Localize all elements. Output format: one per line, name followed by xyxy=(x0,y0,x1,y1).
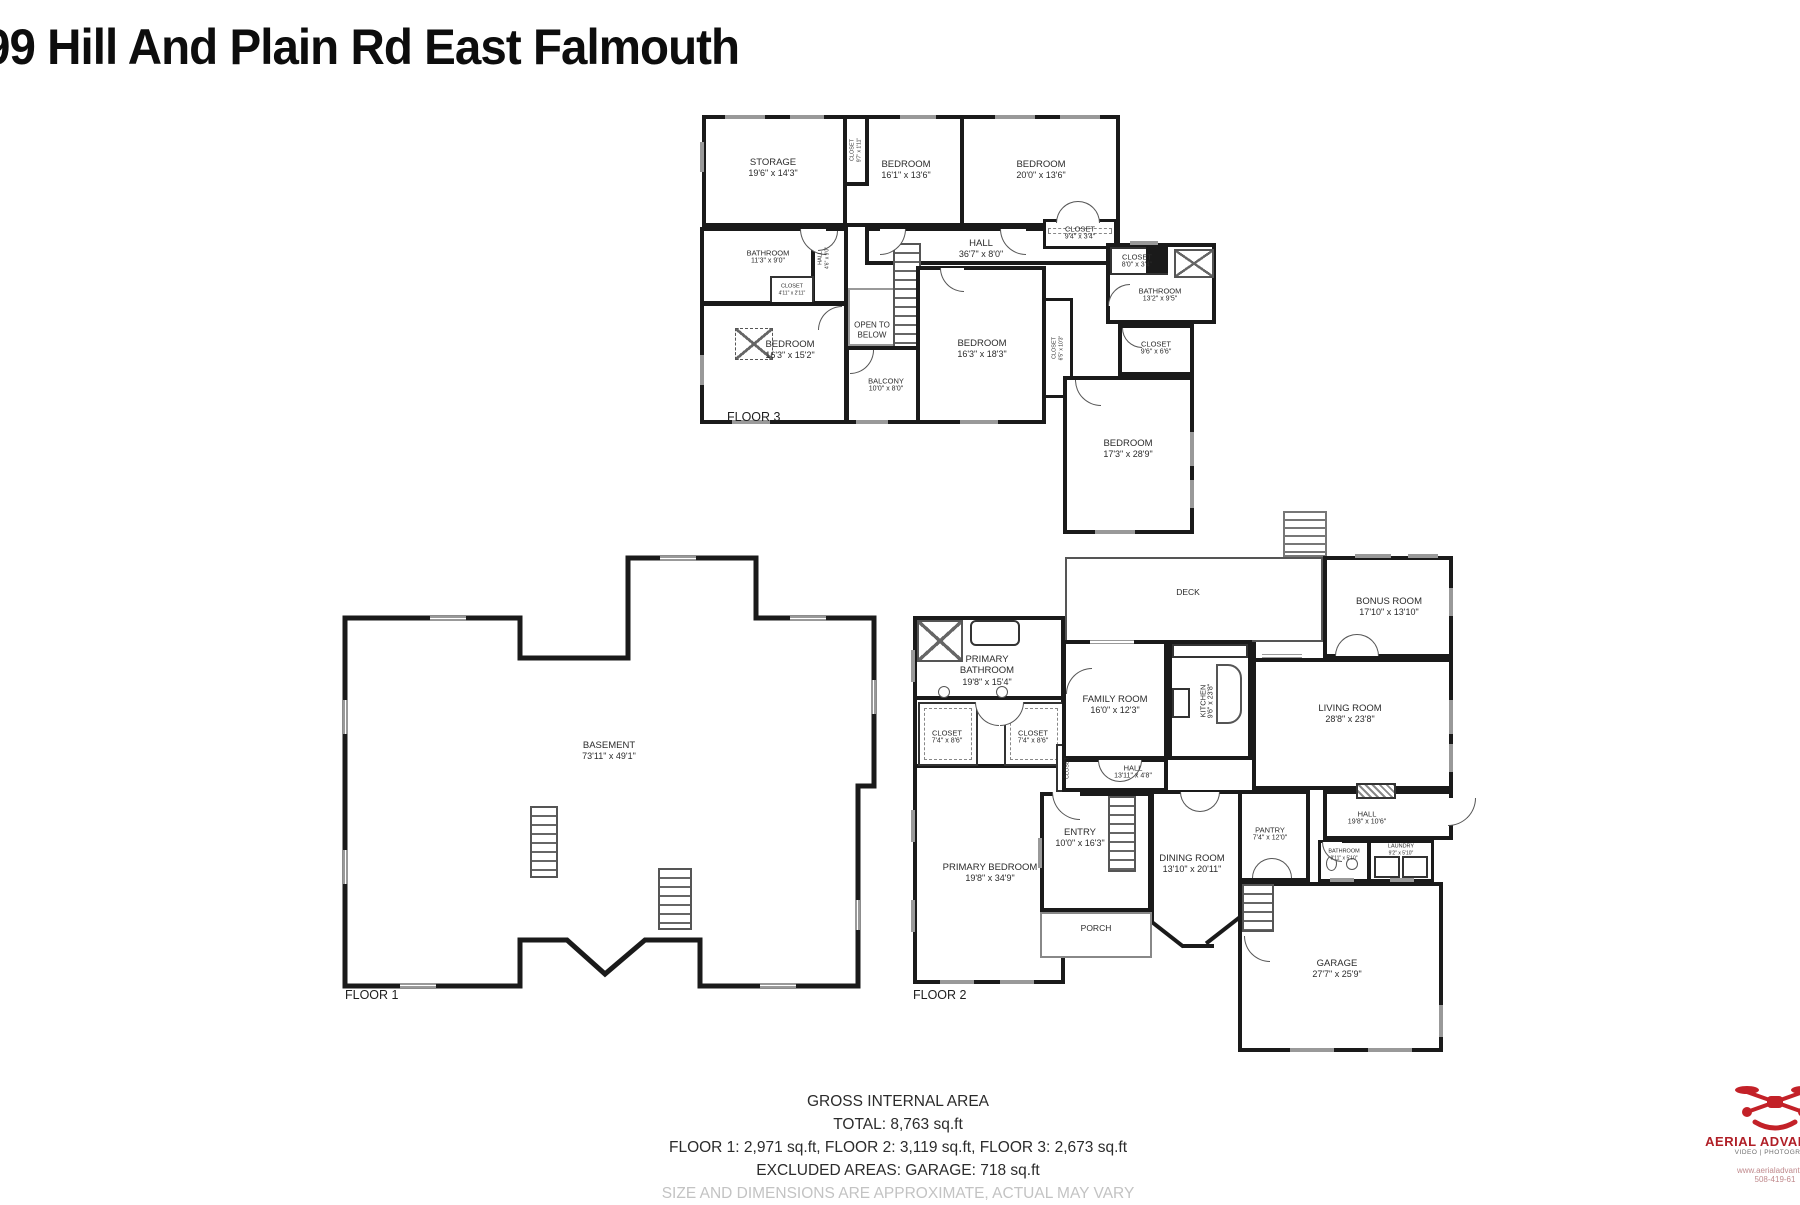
room-label-laundry: LAUNDRY9'2" x 5'10" xyxy=(1388,844,1414,857)
window-marker xyxy=(1368,1048,1412,1052)
room-label-closet-small: CLOSET4'11" x 2'11" xyxy=(779,284,806,297)
room-label-deck: DECK xyxy=(1176,587,1200,597)
window-marker xyxy=(1439,1005,1443,1037)
room-label-living: LIVING ROOM28'8" x 23'8" xyxy=(1318,703,1381,725)
room-label-bedroom-c: BEDROOM16'3" x 15'2" xyxy=(765,339,814,361)
room-label-garage: GARAGE27'7" x 25'9" xyxy=(1312,958,1361,980)
room-label-hall-right: HALL19'8" x 10'6" xyxy=(1348,809,1386,826)
room-label-basement: BASEMENT73'11" x 49'1" xyxy=(582,740,636,762)
window-marker xyxy=(1408,554,1438,558)
window-marker xyxy=(760,983,796,988)
open-area-outline xyxy=(1040,912,1152,958)
wall-segment xyxy=(843,182,869,186)
room-label-entry: ENTRY10'0" x 16'3" xyxy=(1055,827,1104,849)
room-label-dining: DINING ROOM13'10" x 20'11" xyxy=(1159,853,1224,875)
room-label-bedroom-a: BEDROOM16'1" x 13'6" xyxy=(881,159,930,181)
fixture-crossed-box xyxy=(1174,249,1214,278)
room-label-closet-r: CLOSET7'4" x 8'6" xyxy=(1018,728,1049,745)
room-label-closet-strip: CLOSET9'7" x 1'11" xyxy=(850,138,863,162)
branding-block: AERIAL ADVANTAGE VIDEO | PHOTOGRAPH www.… xyxy=(1700,1078,1800,1184)
room-label-balcony: BALCONY10'0" x 8'0" xyxy=(868,376,904,393)
window-marker xyxy=(855,900,860,930)
summary-heading: GROSS INTERNAL AREA xyxy=(662,1090,1135,1113)
staircase xyxy=(1242,884,1274,932)
plumbing-fixture xyxy=(938,686,950,698)
room-outline xyxy=(1172,644,1248,658)
summary-total: TOTAL: 8,763 sq.ft xyxy=(662,1113,1135,1136)
wall-segment xyxy=(913,696,1065,700)
room-label-bathroom-right: BATHROOM13'2" x 9'5" xyxy=(1139,286,1182,303)
room-label-closet-vert: CLOSET6'5" x 10'3" xyxy=(1052,336,1065,361)
shape xyxy=(1216,664,1242,724)
staircase xyxy=(1108,796,1136,872)
room-label-family: FAMILY ROOM16'0" x 12'3" xyxy=(1082,694,1147,716)
window-marker xyxy=(700,355,704,385)
summary-floors: FLOOR 1: 2,971 sq.ft, FLOOR 2: 3,119 sq.… xyxy=(662,1136,1135,1159)
window-marker xyxy=(995,115,1035,119)
window-marker xyxy=(1095,530,1135,534)
wall-opening xyxy=(1090,640,1134,644)
area-summary: GROSS INTERNAL AREA TOTAL: 8,763 sq.ft F… xyxy=(662,1090,1135,1205)
window-marker xyxy=(1130,241,1158,245)
window-marker xyxy=(343,850,348,884)
room-label-closet-l: CLOSET7'4" x 8'6" xyxy=(932,728,963,745)
window-marker xyxy=(1449,744,1453,772)
window-marker xyxy=(871,680,876,714)
room-label-bedroom-d: BEDROOM16'3" x 18'3" xyxy=(957,338,1006,360)
wall-segment xyxy=(960,115,964,227)
page-title: 99 Hill And Plain Rd East Falmouth xyxy=(0,18,739,76)
floor2-label: FLOOR 2 xyxy=(913,988,967,1002)
window-marker xyxy=(856,420,888,424)
window-marker xyxy=(700,142,704,172)
room-label-hall-small: HALL4'6" x 9'0" xyxy=(818,247,831,269)
window-marker xyxy=(660,556,696,561)
drone-icon xyxy=(1733,1078,1800,1134)
window-marker xyxy=(911,900,915,932)
wall-segment xyxy=(1148,918,1185,948)
window-marker xyxy=(940,980,974,984)
window-marker xyxy=(430,616,466,621)
room-outline xyxy=(1374,856,1400,878)
window-marker xyxy=(1190,480,1194,508)
room-label-hall-small-f2: HALL13'11" x 4'8" xyxy=(1114,763,1152,780)
room-outline xyxy=(970,620,1020,646)
window-marker xyxy=(1038,838,1042,868)
room-outline xyxy=(1172,688,1190,718)
window-marker xyxy=(1449,700,1453,734)
window-marker xyxy=(1449,588,1453,616)
wall-segment xyxy=(1252,642,1256,658)
window-marker xyxy=(911,650,915,682)
room-label-pantry: PANTRY7'4" x 12'0" xyxy=(1253,825,1288,842)
staircase xyxy=(1283,511,1327,557)
room-label-bedroom-e: BEDROOM17'3" x 28'9" xyxy=(1103,438,1152,460)
window-marker xyxy=(725,115,765,119)
floor1-label: FLOOR 1 xyxy=(345,988,399,1002)
room-label-kitchen: KITCHEN9'6" x 23'8" xyxy=(1198,684,1215,719)
brand-tagline: VIDEO | PHOTOGRAPH xyxy=(1700,1149,1800,1156)
window-marker xyxy=(1355,554,1391,558)
brand-phone: 508-419-61 xyxy=(1700,1175,1800,1184)
room-label-closet-right: CLOSET8'0" x 3'4" xyxy=(1122,252,1153,269)
room-label-bedroom-b: BEDROOM20'0" x 13'6" xyxy=(1016,159,1065,181)
room-label-bathroom-left: BATHROOM11'3" x 9'0" xyxy=(747,248,790,265)
staircase xyxy=(658,868,692,930)
summary-excluded: EXCLUDED AREAS: GARAGE: 718 sq.ft xyxy=(662,1159,1135,1182)
window-marker xyxy=(343,700,348,734)
brand-name: AERIAL ADVANTAGE xyxy=(1700,1134,1800,1149)
room-label-bathroom-f2: BATHROOM8'11" x 5'10" xyxy=(1328,849,1359,862)
staircase xyxy=(530,806,558,878)
plumbing-fixture xyxy=(996,686,1008,698)
room-label-closet-br: CLOSET9'6" x 6'6" xyxy=(1141,339,1172,356)
window-marker xyxy=(1390,878,1414,882)
window-marker xyxy=(1000,980,1034,984)
window-marker xyxy=(1190,432,1194,466)
window-marker xyxy=(400,983,436,988)
room-label-primary-bedroom: PRIMARY BEDROOM19'8" x 34'9" xyxy=(943,862,1038,884)
room-outline xyxy=(1402,856,1428,878)
room-label-hall: HALL36'7" x 8'0" xyxy=(959,238,1003,260)
wall-segment xyxy=(1116,225,1120,245)
room-label-closet-hall: CLOSET9'4" x 3'4" xyxy=(1065,224,1096,241)
room-label-porch: PORCH xyxy=(1081,923,1112,933)
wall-opening xyxy=(1262,654,1302,658)
window-marker xyxy=(790,616,826,621)
wall-segment xyxy=(865,115,869,184)
room-label-primary-bathroom: PRIMARY BATHROOM19'8" x 15'4" xyxy=(954,654,1020,688)
open-area-outline xyxy=(1065,557,1323,642)
room-label-open-below: OPEN TO BELOW xyxy=(847,320,897,339)
floorplan-canvas: 99 Hill And Plain Rd East Falmouth xyxy=(0,0,1800,1200)
wall-segment xyxy=(843,115,847,227)
summary-disclaimer: SIZE AND DIMENSIONS ARE APPROXIMATE, ACT… xyxy=(662,1182,1135,1205)
room-label-closet-tiny: CLOSET xyxy=(1065,757,1072,779)
window-marker xyxy=(911,810,915,842)
window-marker xyxy=(960,420,998,424)
door-arc xyxy=(1448,798,1476,826)
window-marker xyxy=(1060,115,1100,119)
room-label-storage: STORAGE19'6" x 14'3" xyxy=(748,157,797,179)
window-marker xyxy=(1330,878,1354,882)
chimney-hatch xyxy=(1356,783,1396,799)
window-marker xyxy=(790,115,824,119)
window-marker xyxy=(900,115,936,119)
floor3-label: FLOOR 3 xyxy=(727,410,781,424)
room-label-bonus: BONUS ROOM17'10" x 13'10" xyxy=(1356,596,1422,618)
brand-website: www.aerialadvantage xyxy=(1700,1166,1800,1175)
window-marker xyxy=(1290,1048,1334,1052)
wall-segment xyxy=(1182,944,1214,948)
